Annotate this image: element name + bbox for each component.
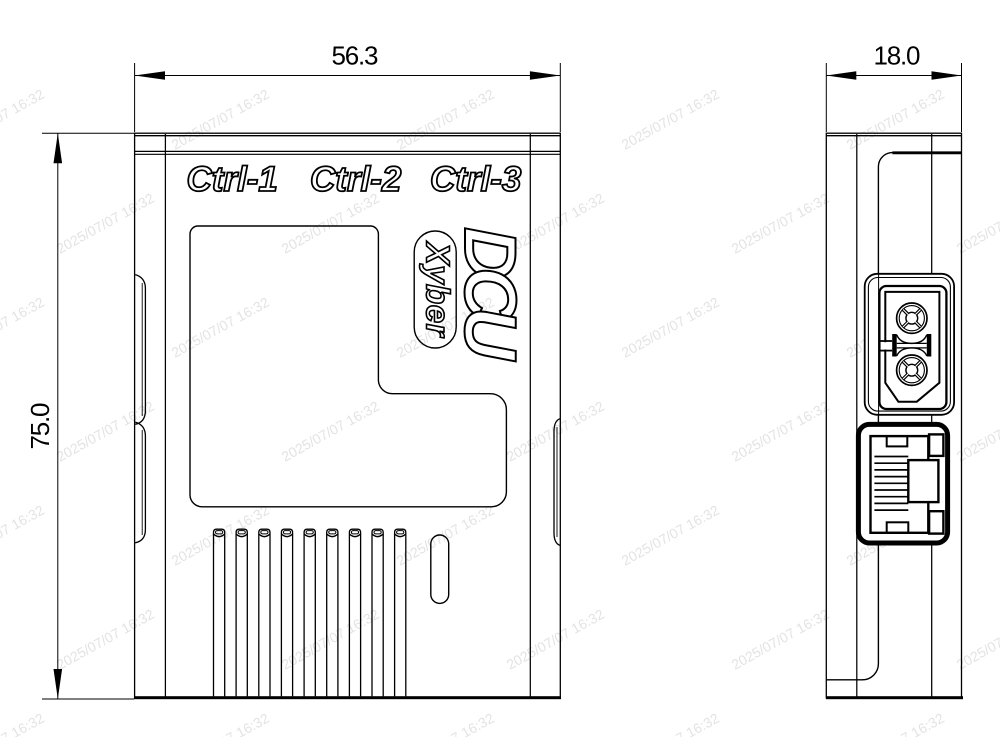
svg-text:Ctrl-2: Ctrl-2: [310, 160, 402, 199]
svg-text:75.0: 75.0: [25, 403, 55, 450]
svg-text:Xyber: Xyber: [420, 241, 457, 339]
svg-text:Ctrl-3: Ctrl-3: [430, 160, 522, 199]
svg-text:18.0: 18.0: [874, 41, 921, 71]
svg-text:56.3: 56.3: [332, 41, 379, 71]
svg-text:DCU: DCU: [449, 227, 530, 362]
svg-text:Ctrl-1: Ctrl-1: [187, 160, 278, 199]
